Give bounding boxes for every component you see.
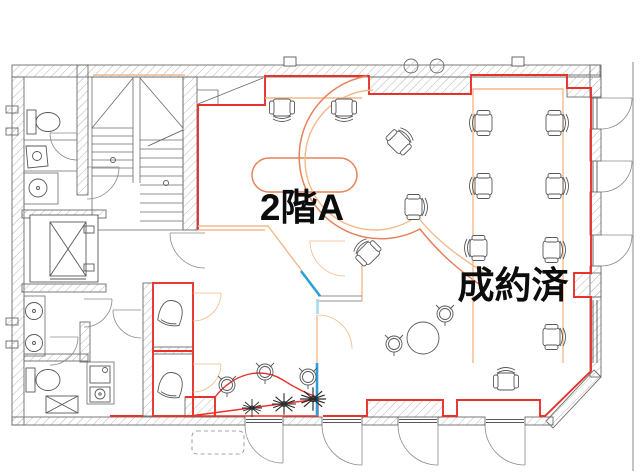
elevator (30, 215, 98, 282)
column-icon (404, 59, 418, 73)
corner-basin-icon (26, 146, 48, 168)
kitchenette-icon (87, 362, 114, 404)
round-table (407, 322, 439, 354)
lease-boundary-red (110, 75, 591, 416)
floor-plan-drawing: 2階A 成約済 (0, 0, 640, 473)
stools-and-tables (218, 305, 454, 397)
area-a-fittings (193, 76, 486, 392)
counter-wave-line (215, 373, 317, 397)
floor-plan-page: 2階A 成約済 (0, 0, 640, 473)
toilet-icon (26, 368, 60, 392)
office-chairs (270, 99, 569, 390)
bottom-entrance-doors (245, 420, 525, 466)
vanity-basins (24, 296, 45, 356)
entrance-mat (192, 431, 244, 454)
stair-landing (197, 78, 263, 105)
label-area-a: 2階A (260, 187, 344, 228)
staircase (92, 75, 185, 230)
label-sold: 成約済 (458, 265, 570, 306)
round-basin-icon (24, 173, 58, 204)
column-icon (430, 59, 444, 73)
toilet-icon (27, 110, 60, 134)
curved-counter-inner (305, 90, 483, 272)
plants (242, 387, 326, 417)
partition-line (198, 226, 302, 271)
cabinet-icon (46, 396, 78, 413)
